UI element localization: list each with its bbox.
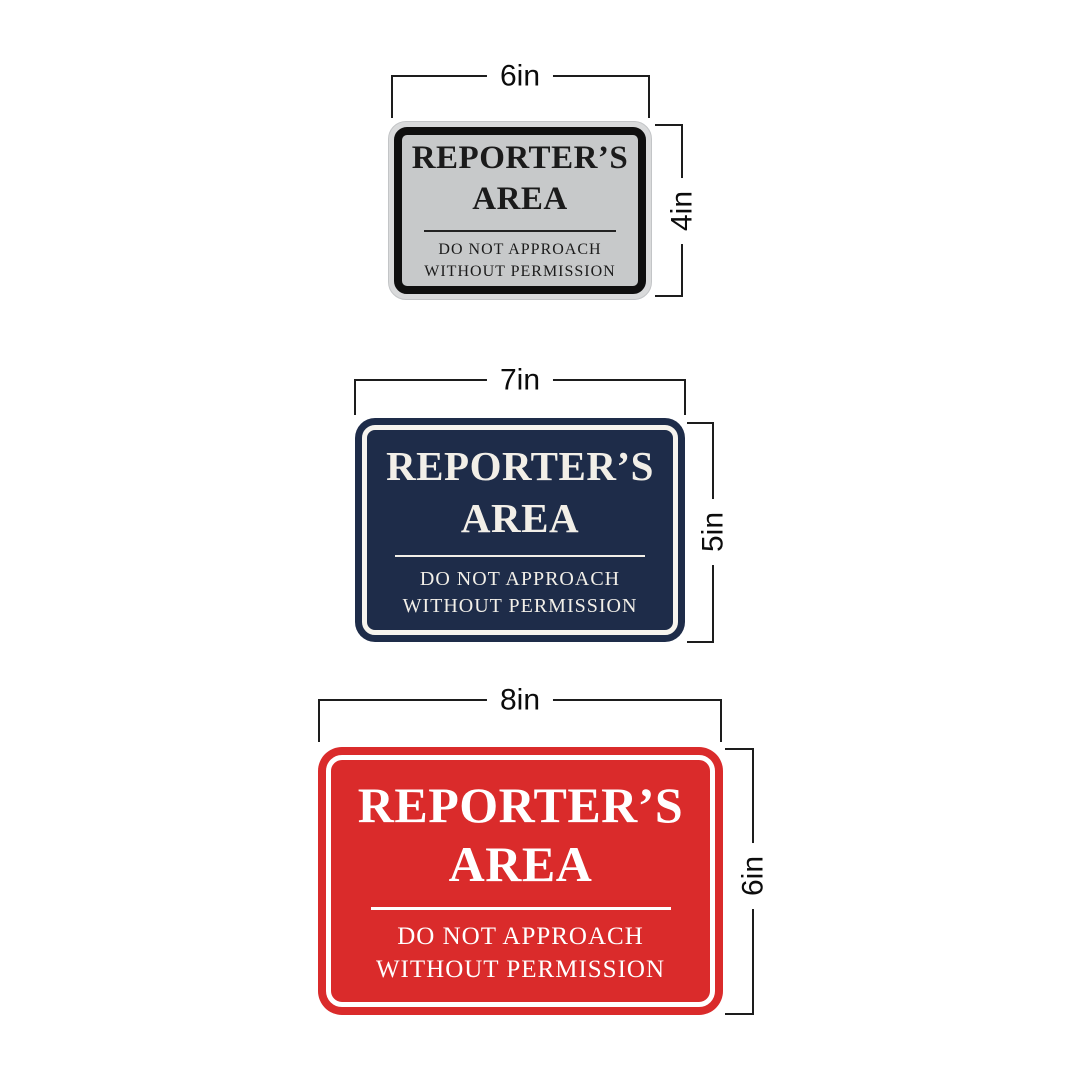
sign-subtitle-line2: WITHOUT PERMISSION [376,954,665,987]
dimension-tick [725,748,754,750]
sign-face: REPORTER’S AREA DO NOT APPROACH WITHOUT … [394,127,646,294]
dimension-tick [354,379,356,415]
dimension-tick [684,379,686,415]
sign-divider-rule [424,230,616,232]
dimension-tick [648,75,650,118]
sign-divider-rule [371,907,671,910]
width-dimension-label: 7in [487,364,553,397]
sign-title-line1: REPORTER’S [358,776,684,835]
sign-frame: REPORTER’S AREA DO NOT APPROACH WITHOUT … [388,121,652,300]
sign-subtitle-line1: DO NOT APPROACH [420,566,620,593]
sign-subtitle-line2: WITHOUT PERMISSION [403,593,638,620]
height-dimension-label: 4in [666,178,699,244]
sign-title-line2: AREA [472,179,568,221]
sign-face: REPORTER’S AREA DO NOT APPROACH WITHOUT … [362,425,678,635]
sign-silver: REPORTER’S AREA DO NOT APPROACH WITHOUT … [388,121,652,300]
sign-subtitle-line2: WITHOUT PERMISSION [424,261,615,283]
sign-navy: REPORTER’S AREA DO NOT APPROACH WITHOUT … [355,418,685,642]
dimension-tick [725,1013,754,1015]
product-dimension-mockup: 6in 4in REPORTER’S AREA DO NOT APPROACH … [0,0,1082,1082]
height-dimension-label: 5in [697,499,730,565]
sign-subtitle-line1: DO NOT APPROACH [438,239,601,261]
dimension-tick [318,699,320,742]
dimension-tick [655,124,683,126]
dimension-tick [655,295,683,297]
width-dimension-label: 6in [487,60,553,93]
height-dimension-label: 6in [737,843,770,909]
sign-face: REPORTER’S AREA DO NOT APPROACH WITHOUT … [326,755,715,1007]
sign-divider-rule [395,555,645,557]
sign-title-line1: REPORTER’S [412,138,629,180]
dimension-tick [391,75,393,118]
sign-title-line2: AREA [461,492,579,544]
dimension-tick [687,422,714,424]
sign-title-line1: REPORTER’S [386,440,654,492]
sign-red: REPORTER’S AREA DO NOT APPROACH WITHOUT … [318,747,723,1015]
sign-frame: REPORTER’S AREA DO NOT APPROACH WITHOUT … [318,747,723,1015]
dimension-tick [720,699,722,742]
width-dimension-label: 8in [487,684,553,717]
sign-subtitle-line1: DO NOT APPROACH [397,921,644,954]
sign-title-line2: AREA [449,835,593,894]
dimension-tick [687,641,714,643]
sign-frame: REPORTER’S AREA DO NOT APPROACH WITHOUT … [355,418,685,642]
